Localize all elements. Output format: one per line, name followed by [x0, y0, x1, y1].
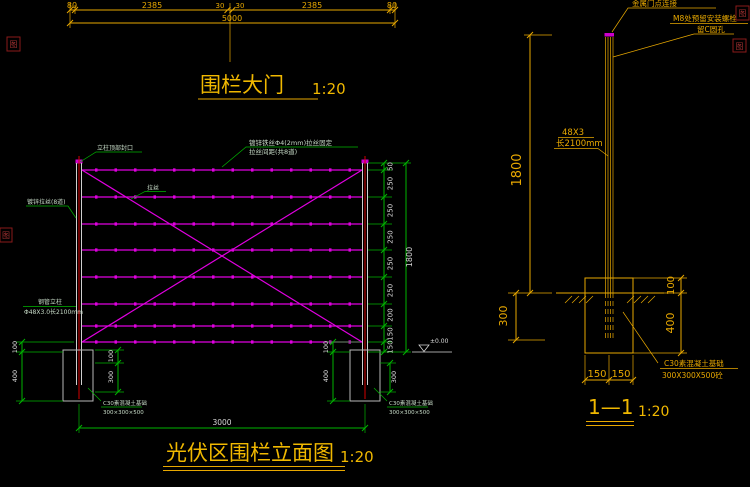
svg-text:250: 250 [387, 284, 395, 297]
svg-text:400: 400 [11, 370, 19, 382]
elevation-right-dim-chain: 50 250 250 250 250 250 200 150 150 1800 [368, 160, 414, 355]
svg-text:C30素混凝土基础: C30素混凝土基础 [664, 358, 724, 368]
svg-text:200: 200 [387, 308, 395, 321]
note-wire-spec-2: 拉丝间距(共8道) [249, 147, 297, 156]
section-post [605, 33, 615, 338]
drawing-stamps: 图 图 图 图 [0, 6, 749, 242]
note-metal-door: 金属门点连接 [632, 0, 677, 8]
gate-dim-overall: 5000 [222, 14, 242, 23]
footing-left [63, 350, 93, 401]
svg-text:150: 150 [611, 369, 630, 380]
elevation-left-outer-dims: 100 400 [11, 339, 74, 404]
gate-title-scale: 1:20 [312, 80, 346, 98]
svg-text:250: 250 [387, 177, 395, 190]
svg-text:300×300×500: 300×300×500 [103, 410, 144, 416]
fence-post-right [362, 156, 369, 399]
level-marker: ±0.00 [412, 338, 452, 352]
gate-dim-30-right: 30 [236, 2, 245, 10]
svg-text:250: 250 [387, 230, 395, 243]
gate-dim-80-left: 80 [67, 1, 77, 10]
gate-dimension-drawing: 80 2385 30 30 2385 80 5000 围栏大门 1:20 [67, 1, 398, 99]
fence-elevation: 50 250 250 250 250 250 200 150 150 1800 … [11, 138, 452, 471]
stamp-icon: 图 [733, 39, 746, 52]
note-post-spec-1: 钢管立柱 [38, 298, 62, 306]
svg-text:3000: 3000 [212, 418, 231, 427]
section-title-scale: 1:20 [638, 404, 669, 420]
section-post-length: 长2100mm [556, 138, 603, 149]
note-m8-bolt: M8处预留安装螺栓 [673, 13, 737, 23]
svg-text:100: 100 [107, 350, 115, 362]
svg-text:300X300X500砼: 300X300X500砼 [662, 370, 723, 380]
svg-text:300: 300 [390, 371, 398, 383]
svg-text:250: 250 [387, 257, 395, 270]
svg-text:100: 100 [322, 341, 330, 353]
svg-text:图: 图 [2, 231, 10, 240]
elevation-right-outer-dims: 100 400 [322, 339, 360, 404]
svg-text:400: 400 [322, 370, 330, 382]
svg-text:300: 300 [107, 371, 115, 383]
elevation-overall-height: 1800 [405, 247, 414, 267]
cad-drawing-canvas: 80 2385 30 30 2385 80 5000 围栏大门 1:20 金属门… [0, 0, 750, 487]
section-ground [556, 293, 664, 303]
section-left-dim: 300 [497, 290, 552, 343]
gate-connection-notes: 金属门点连接 M8处预留安装螺栓 留C圆孔 [612, 0, 748, 57]
svg-text:±0.00: ±0.00 [430, 338, 449, 345]
gate-dim-30-left: 30 [216, 2, 225, 10]
svg-text:100: 100 [11, 341, 19, 353]
svg-text:C30素混凝土基础: C30素混凝土基础 [389, 399, 433, 407]
elevation-title-scale: 1:20 [340, 448, 374, 466]
elevation-title: 光伏区围栏立面图 [166, 441, 334, 465]
svg-text:图: 图 [10, 40, 18, 49]
svg-text:图: 图 [739, 9, 747, 18]
gate-title: 围栏大门 [200, 73, 284, 97]
svg-text:300×300×500: 300×300×500 [389, 410, 430, 416]
svg-text:300: 300 [497, 306, 510, 327]
section-title: 1—1 [588, 395, 633, 419]
section-height-dim: 1800 [510, 153, 525, 186]
note-post-spec-2: Φ48X3.0长2100mm [24, 308, 83, 316]
note-post-top: 立柱顶部封口 [97, 144, 133, 152]
cad-drawing: 80 2385 30 30 2385 80 5000 围栏大门 1:20 金属门… [0, 0, 750, 487]
note-wire-rows: 镀锌拉丝(8道) [27, 198, 66, 206]
elevation-left-inner-dims: 100 300 [95, 347, 124, 395]
gate-dim-2385-right: 2385 [302, 1, 322, 10]
elevation-bottom-dim: 3000 [76, 404, 368, 433]
section-post-size: 48X3 [562, 128, 584, 138]
fence-cross-braces [82, 170, 362, 342]
svg-text:250: 250 [387, 204, 395, 217]
section-1-1: 1800 48X3 长2100mm [497, 32, 738, 426]
gate-dim-2385-left: 2385 [142, 1, 162, 10]
note-wire-spec-1: 镀锌铁丝Φ4(2mm)拉丝固定 [249, 138, 333, 147]
stamp-icon: 图 [736, 6, 749, 20]
gate-dim-80-right: 80 [387, 1, 397, 10]
note-hole: 留C圆孔 [697, 24, 725, 34]
elevation-right-inner-dim: 300 [380, 360, 398, 395]
fence-post-left [76, 156, 83, 399]
section-right-dims: 100 400 [633, 275, 687, 356]
svg-text:100: 100 [666, 276, 677, 295]
stamp-icon: 图 [0, 228, 12, 242]
section-bottom-dims: 150 150 [582, 355, 636, 385]
svg-text:图: 图 [736, 42, 744, 51]
svg-text:150: 150 [587, 369, 606, 380]
note-wire: 拉丝 [147, 184, 159, 192]
svg-text:150: 150 [387, 327, 395, 340]
svg-text:C30素混凝土基础: C30素混凝土基础 [103, 399, 147, 407]
svg-text:400: 400 [664, 313, 677, 334]
stamp-icon: 图 [7, 37, 20, 51]
svg-text:150: 150 [387, 340, 395, 353]
svg-text:50: 50 [387, 162, 395, 171]
